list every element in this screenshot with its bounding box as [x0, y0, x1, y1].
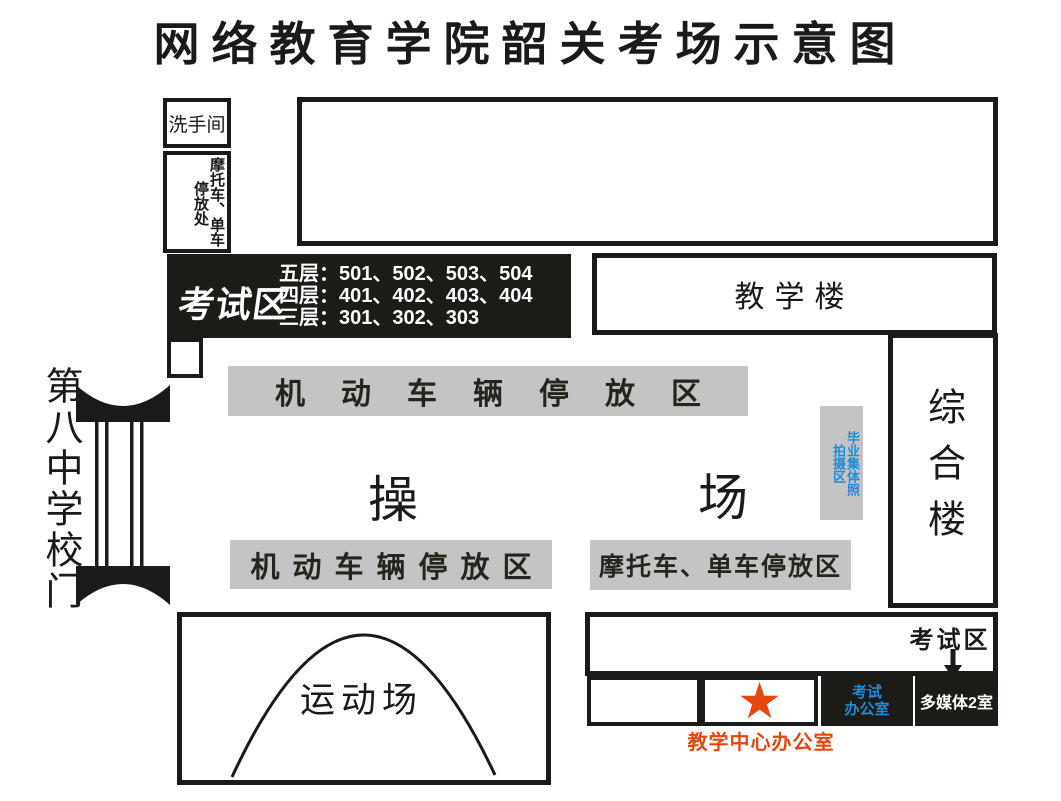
motor-parking-bar-top: 机动车辆停放区	[228, 366, 748, 416]
photo-label-col-left: 拍摄区	[831, 410, 845, 516]
exam-office-line2: 办公室	[844, 701, 889, 718]
teaching-center-office-box: ★	[701, 676, 818, 726]
wall-stub-box	[167, 338, 203, 378]
exam-floor-list: 五层：501、502、503、504 四层：401、402、403、404 三层…	[279, 263, 532, 329]
multimedia-room-box: 多媒体2室	[915, 676, 998, 726]
north-building-outline	[297, 97, 998, 246]
playground-char-right: 场	[698, 458, 748, 530]
complex-building-label: 综合楼	[916, 387, 971, 555]
floor-line-3: 三层：301、302、303	[279, 307, 532, 329]
exam-office-box: 考试 办公室	[821, 676, 913, 726]
teaching-building-box: 教学楼	[592, 253, 997, 335]
shed-label-col-left: 停放处	[192, 157, 208, 249]
moto-bike-shed-box: 摩托车、单车 停放处	[163, 151, 231, 253]
page-title: 网络教育学院韶关考场示意图	[0, 8, 1061, 74]
south-room-box-1	[587, 676, 701, 726]
motor-parking-bar-bottom: 机动车辆停放区	[230, 540, 552, 589]
sports-field-label: 运动场	[300, 672, 423, 723]
shed-label-col-right: 摩托车、单车	[208, 157, 224, 249]
teaching-center-office-label: 教学中心办公室	[640, 726, 882, 755]
moto-bike-parking-bar: 摩托车、单车停放区	[590, 540, 851, 590]
moto-bike-parking-label: 摩托车、单车停放区	[599, 547, 842, 583]
washroom-label: 洗手间	[168, 110, 225, 137]
school-gate-icon	[76, 383, 170, 605]
exam-office-line1: 考试	[844, 684, 889, 701]
graduation-photo-area-label: 毕业集体照 拍摄区	[831, 410, 859, 516]
exam-office-label: 考试 办公室	[844, 684, 889, 718]
exam-venue-map: 网络教育学院韶关考场示意图 洗手间 摩托车、单车 停放处 考试区 五层：501、…	[0, 0, 1061, 801]
complex-building-box: 综合楼	[888, 333, 998, 608]
motor-parking-top-label: 机动车辆停放区	[239, 369, 737, 413]
moto-bike-shed-label: 摩托车、单车 停放处	[192, 157, 224, 249]
graduation-photo-area-box: 毕业集体照 拍摄区	[820, 406, 863, 520]
washroom-box: 洗手间	[163, 98, 231, 148]
star-icon: ★	[737, 676, 782, 726]
motor-parking-bottom-label: 机动车辆停放区	[237, 544, 544, 586]
exam-zone-bar-label: 考试区	[175, 276, 293, 328]
floor-line-5: 五层：501、502、503、504	[279, 263, 532, 285]
photo-label-col-right: 毕业集体照	[845, 410, 859, 516]
teaching-building-label: 教学楼	[735, 272, 855, 316]
exam-zone-bar: 考试区 五层：501、502、503、504 四层：401、402、403、40…	[167, 254, 571, 338]
playground-char-left: 操	[368, 460, 418, 532]
multimedia-room-label: 多媒体2室	[920, 689, 993, 713]
sports-field-box: 运动场	[177, 612, 551, 785]
arrow-down-icon	[944, 649, 962, 679]
floor-line-4: 四层：401、402、403、404	[279, 285, 532, 307]
